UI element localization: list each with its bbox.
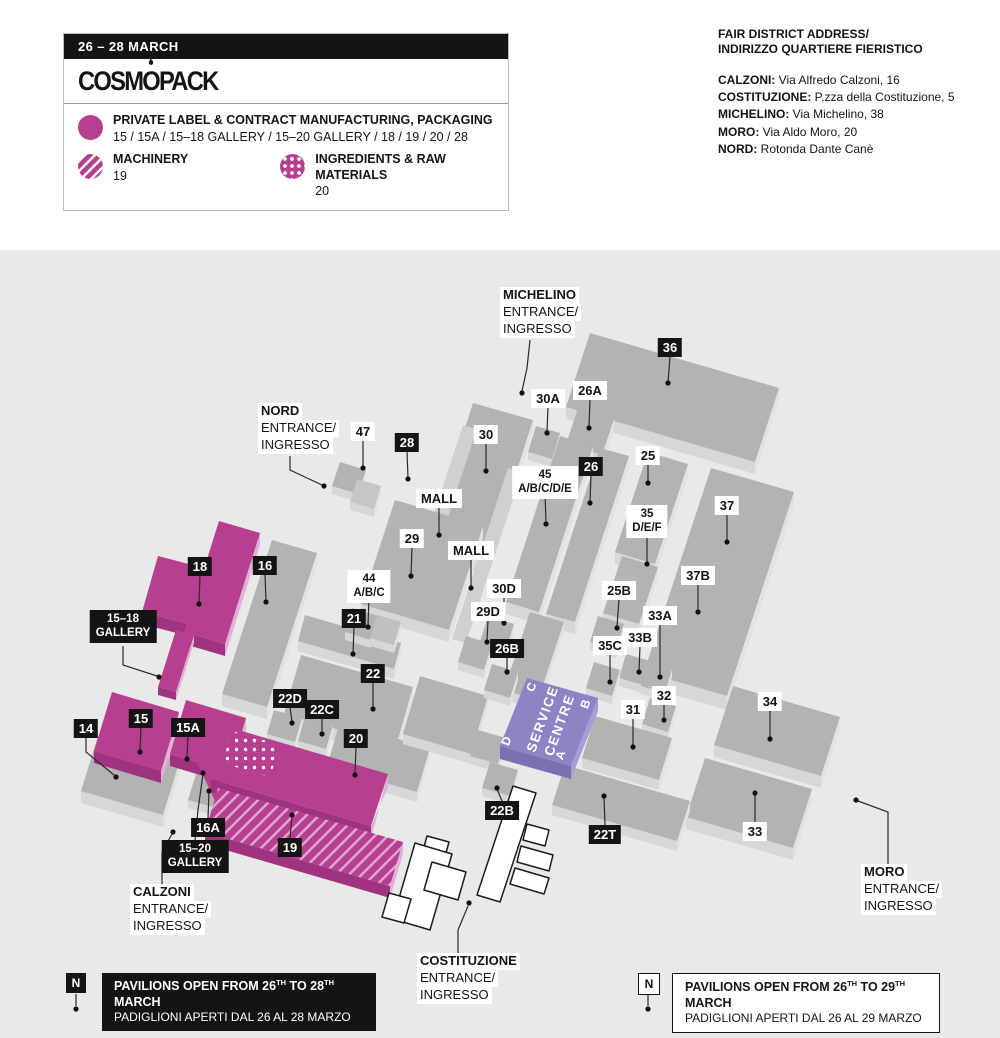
hall-label-30: 30 bbox=[474, 425, 498, 444]
hall-label-22C: 22C bbox=[305, 700, 339, 719]
hall-label-30D: 30D bbox=[487, 579, 521, 598]
mall-label-2: MALL bbox=[448, 541, 494, 560]
mall-label-1: MALL bbox=[416, 489, 462, 508]
hall-label-47: 47 bbox=[351, 422, 375, 441]
hall-label-45: 45A/B/C/D/E bbox=[512, 466, 578, 499]
entrance-calzoni: CALZONI ENTRANCE/ INGRESSO bbox=[130, 884, 211, 935]
hall-label-37B: 37B bbox=[681, 566, 715, 585]
hall-label-35C: 35C bbox=[593, 636, 627, 655]
hall-label-18: 18 bbox=[188, 557, 212, 576]
hall-label-15A: 15A bbox=[171, 718, 205, 737]
gallery-label-15-18: 15–18GALLERY bbox=[90, 610, 157, 643]
hall-label-30A: 30A bbox=[531, 389, 565, 408]
hall-label-21: 21 bbox=[342, 609, 366, 628]
hall-label-33A: 33A bbox=[643, 606, 677, 625]
note-marker-n-black: N bbox=[66, 973, 86, 993]
hall-label-37: 37 bbox=[715, 496, 739, 515]
hall-label-31: 31 bbox=[621, 700, 645, 719]
hall-label-14: 14 bbox=[74, 719, 98, 738]
fair-map-canvas bbox=[0, 0, 1000, 1038]
entrance-moro: MORO ENTRANCE/ INGRESSO bbox=[861, 864, 942, 915]
note-marker-n-white: N bbox=[638, 973, 660, 995]
hall-label-25B: 25B bbox=[602, 581, 636, 600]
hall-label-29: 29 bbox=[400, 529, 424, 548]
hall-label-22T: 22T bbox=[589, 825, 621, 844]
hall-label-32: 32 bbox=[652, 686, 676, 705]
hall-label-26A: 26A bbox=[573, 381, 607, 400]
hall-label-44: 44A/B/C bbox=[347, 570, 390, 603]
hall-label-28: 28 bbox=[395, 433, 419, 452]
hall-label-26B: 26B bbox=[490, 639, 524, 658]
hall-label-19: 19 bbox=[278, 838, 302, 857]
hall-label-16A: 16A bbox=[191, 818, 225, 837]
hall-label-35: 35D/E/F bbox=[626, 505, 667, 538]
hall-label-22: 22 bbox=[361, 664, 385, 683]
hall-label-26: 26 bbox=[579, 457, 603, 476]
hall-label-25: 25 bbox=[636, 446, 660, 465]
entrance-michelino: MICHELINO ENTRANCE/ INGRESSO bbox=[500, 287, 581, 338]
hall-label-29D: 29D bbox=[471, 602, 505, 621]
note-open-26-29: PAVILIONS OPEN FROM 26TH TO 29TH MARCH P… bbox=[672, 973, 940, 1033]
hall-label-22D: 22D bbox=[273, 689, 307, 708]
hall-label-34: 34 bbox=[758, 692, 782, 711]
cosmopack-fair-map-page: { "header": { "dates": "26 – 28 MARCH", … bbox=[0, 0, 1000, 1038]
entrance-nord: NORD ENTRANCE/ INGRESSO bbox=[258, 403, 339, 454]
hall-label-22B: 22B bbox=[485, 801, 519, 820]
entrance-costituzione: COSTITUZIONE ENTRANCE/ INGRESSO bbox=[417, 953, 520, 1004]
hall-label-33: 33 bbox=[743, 822, 767, 841]
hall-label-36: 36 bbox=[658, 338, 682, 357]
hall-label-15: 15 bbox=[129, 709, 153, 728]
hall-label-16: 16 bbox=[253, 556, 277, 575]
hall-label-33B: 33B bbox=[623, 628, 657, 647]
note-open-26-28: PAVILIONS OPEN FROM 26TH TO 28TH MARCH P… bbox=[102, 973, 376, 1031]
hall-label-20: 20 bbox=[344, 729, 368, 748]
gallery-label-15-20: 15–20GALLERY bbox=[162, 840, 229, 873]
